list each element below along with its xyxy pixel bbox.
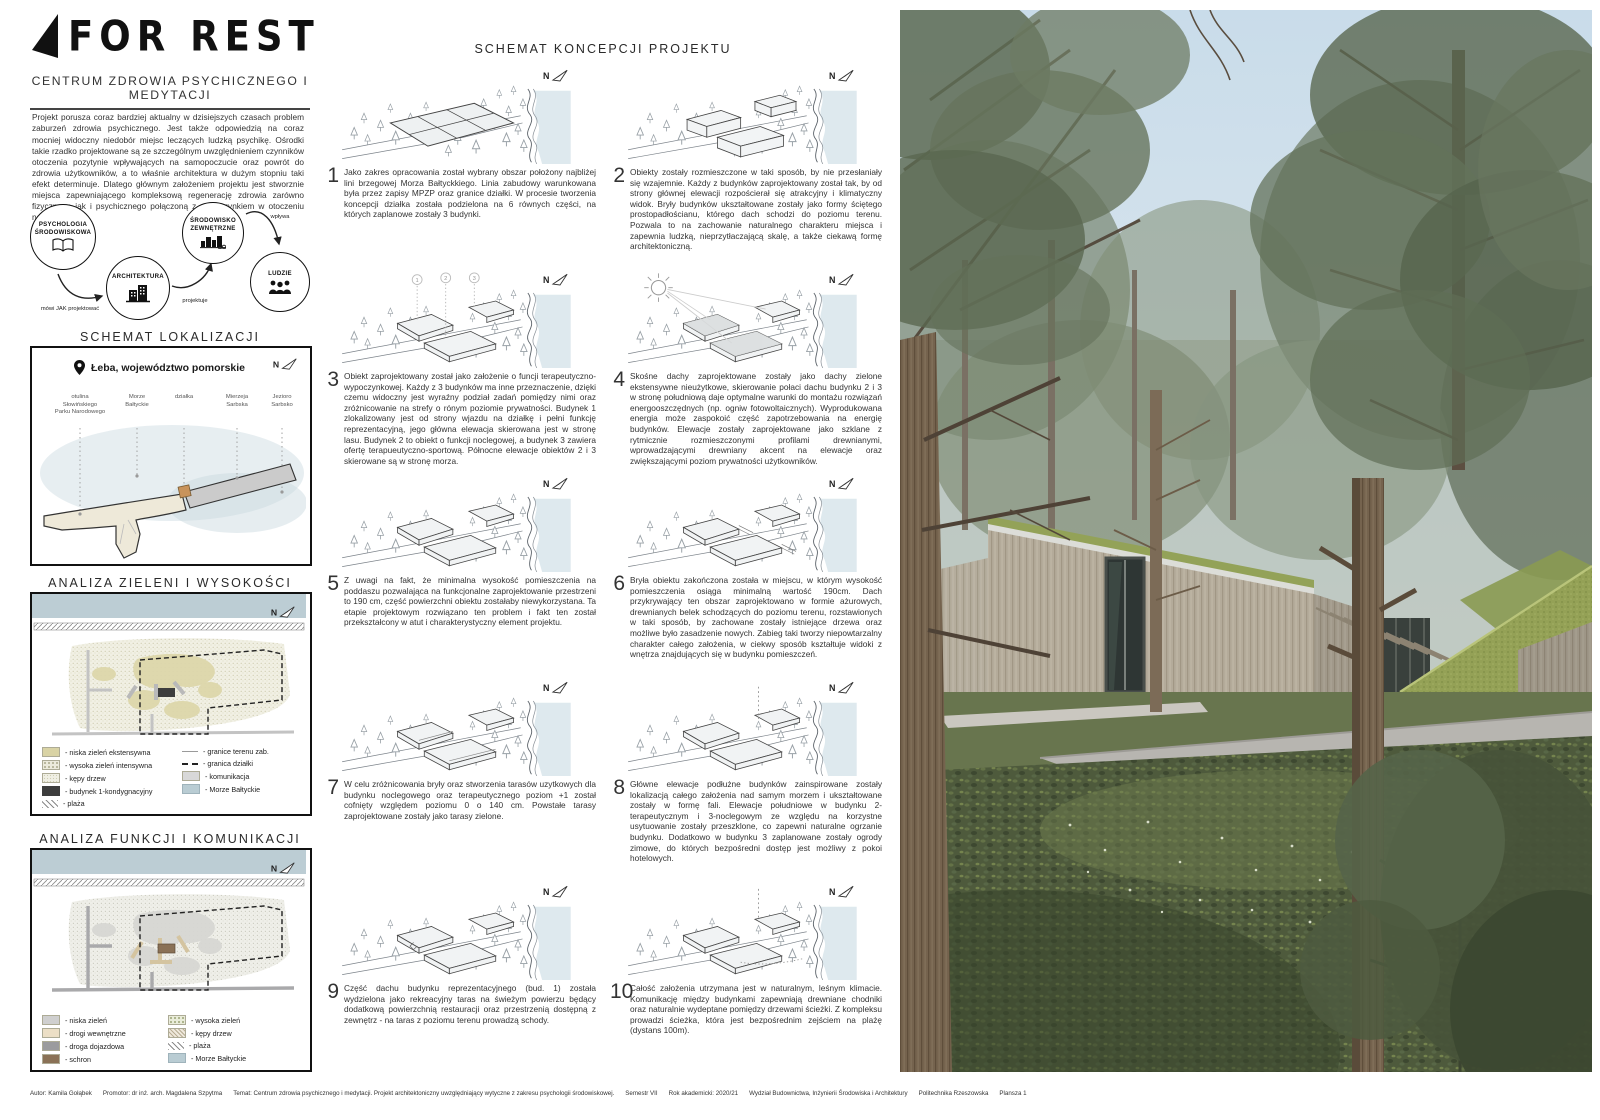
swatch-beach-2 (168, 1042, 184, 1050)
function-analysis-frame: - niska zieleń - drogi wewnętrzne - drog… (30, 848, 312, 1072)
flow-node-psychology: PSYCHOLOGIA ŚRODOWISKOWA (30, 204, 96, 270)
concept-flow-diagram: PSYCHOLOGIA ŚRODOWISKOWA ARCHITEKTURA ŚR… (22, 200, 314, 328)
legend-item: - niska zieleń (42, 1015, 168, 1025)
concept-step-6: 6Bryła obiektu zakończona została w miej… (610, 472, 882, 676)
concept-grid: 1Jako zakres opracowania został wybrany … (324, 64, 884, 1084)
concept-sketch-4 (610, 268, 882, 368)
location-map (32, 348, 306, 560)
legend-item: - budynek 1-kondygnacyjny (42, 786, 182, 796)
swatch-high-green-int (42, 760, 60, 770)
sun-icon (644, 273, 673, 302)
swatch-internal-roads (42, 1028, 60, 1038)
flow-arrow-label-2: projektuje (170, 298, 220, 304)
green-analysis-map (32, 594, 306, 744)
svg-text:3: 3 (473, 276, 476, 282)
concept-step-5: 5Z uwagi na fakt, że minimalna wysokość … (324, 472, 596, 676)
logo: FOR REST (30, 14, 320, 58)
footer-semester: Semestr VII (625, 1090, 657, 1097)
architectural-render (900, 10, 1592, 1072)
people-icon (267, 279, 293, 294)
location-map-frame: Łeba, województwo pomorskie otulina Słow… (30, 346, 312, 566)
concept-sketch-3: 1 2 3 (324, 268, 596, 368)
swatch-baltic-sea-2 (168, 1053, 186, 1063)
legend-item: - wysoka zieleń intensywna (42, 760, 182, 770)
location-label-4: Jezioro Sarbsko (249, 394, 315, 409)
concept-step-2: 2Obiekty zostały rozmieszczone w taki sp… (610, 64, 882, 268)
swatch-low-green-ext (42, 747, 60, 757)
flow-node-people: LUDZIE (250, 252, 310, 312)
legend-item: - kępy drzew (168, 1028, 288, 1038)
concept-sketch-7 (324, 676, 596, 776)
footer-year: Rok akademicki: 2020/21 (669, 1090, 738, 1097)
swatch-beach (42, 800, 58, 808)
footer-faculty: Wydział Budownictwa, Inżynierii Środowis… (749, 1090, 907, 1097)
swatch-access-road (42, 1041, 60, 1051)
footer-promoter: Promotor: dr inż. arch. Magdalena Szpytm… (103, 1090, 222, 1097)
concept-sketch-2 (610, 64, 882, 164)
swatch-low-green (42, 1015, 60, 1025)
svg-text:2: 2 (444, 276, 447, 282)
swatch-tree-clumps-2 (168, 1028, 186, 1038)
concept-step-7: 7W celu zróżnicowania bryły oraz stworze… (324, 676, 596, 880)
flow-arrow-label-3: wpływa (260, 214, 300, 220)
legend-item: - plaża (42, 799, 182, 808)
location-section-title: SCHEMAT LOKALIZACJI (30, 330, 310, 344)
concept-sketch-5 (324, 472, 596, 572)
legend-item: - droga dojazdowa (42, 1041, 168, 1051)
flow-node-environment: ŚRODOWISKO ZEWNĘTRZNE (182, 202, 244, 264)
legend-item: - granica działki (182, 759, 300, 768)
green-analysis-legend: - niska zieleń ekstensywna - wysoka ziel… (42, 747, 300, 808)
map-pin-icon (74, 360, 85, 375)
swatch-shelter (42, 1054, 60, 1064)
swatch-building (42, 786, 60, 796)
swatch-tree-clumps (42, 773, 60, 783)
legend-item: - drogi wewnętrzne (42, 1028, 168, 1038)
footer-credits: Autor: Kamila Gołąbek Promotor: dr inż. … (30, 1090, 890, 1097)
step-text: Jako zakres opracowania został wybrany o… (344, 167, 596, 220)
swatch-plot-boundary (182, 763, 198, 765)
legend-item: - Morze Bałtyckie (168, 1053, 288, 1063)
render-image (900, 10, 1592, 1072)
footer-university: Politechnika Rzeszowska (919, 1090, 989, 1097)
legend-item: - wysoka zieleń (168, 1015, 288, 1025)
footer-sheet: Plansza 1 (999, 1090, 1026, 1097)
green-analysis-frame: - niska zieleń ekstensywna - wysoka ziel… (30, 592, 312, 816)
concept-sketch-1 (324, 64, 596, 164)
function-analysis-map (32, 850, 306, 1000)
concept-step-8: 8Główne elewacje podłużne budynków zains… (610, 676, 882, 880)
presentation-board: FOR REST CENTRUM ZDROWIA PSYCHICZNEGO I … (0, 0, 1600, 1120)
concept-sketch-6 (610, 472, 882, 572)
location-place: Łeba, województwo pomorskie (74, 360, 245, 375)
function-analysis-legend: - niska zieleń - drogi wewnętrzne - drog… (42, 1015, 300, 1064)
city-icon (200, 234, 226, 249)
buildings-icon (126, 283, 150, 303)
swatch-circulation (182, 771, 200, 781)
logo-triangle-icon (30, 14, 60, 58)
flow-arrow-label-1: mówi JAK projektować (24, 306, 116, 312)
concept-step-9: 9Część dachu budynku reprezentacyjnego (… (324, 880, 596, 1084)
low-wall (936, 558, 988, 692)
concept-step-10: 10Całość założenia utrzymana jest w natu… (610, 880, 882, 1084)
logo-text: FOR REST (68, 12, 320, 60)
book-icon (51, 238, 75, 253)
legend-item: - komunikacja (182, 771, 300, 781)
board-subtitle: CENTRUM ZDROWIA PSYCHICZNEGO I MEDYTACJI (30, 74, 310, 110)
svg-text:1: 1 (416, 278, 419, 284)
legend-item: - kępy drzew (42, 773, 182, 783)
step-number: 1 (324, 167, 339, 220)
legend-item: - Morze Bałtyckie (182, 784, 300, 794)
concept-sketch-8 (610, 676, 882, 776)
concept-sketch-9 (324, 880, 596, 980)
legend-item: - granice terenu zab. (182, 747, 300, 756)
concept-step-1: 1Jako zakres opracowania został wybrany … (324, 64, 596, 268)
concept-step-3: 1 2 3 3Obiekt zaprojektowany został jako… (324, 268, 596, 472)
legend-item: - plaża (168, 1041, 288, 1050)
legend-item: - schron (42, 1054, 168, 1064)
swatch-baltic-sea (182, 784, 200, 794)
swatch-high-green (168, 1015, 186, 1025)
swatch-dev-boundary (182, 751, 198, 752)
footer-author: Autor: Kamila Gołąbek (30, 1090, 92, 1097)
concept-step-4: 4Skośne dachy zaprojektowane zostały jak… (610, 268, 882, 472)
legend-item: - niska zieleń ekstensywna (42, 747, 182, 757)
footer-topic: Temat: Centrum zdrowia psychicznego i me… (233, 1090, 614, 1097)
concept-sketch-10 (610, 880, 882, 980)
concept-section-title: SCHEMAT KONCEPCJI PROJEKTU (330, 42, 876, 56)
